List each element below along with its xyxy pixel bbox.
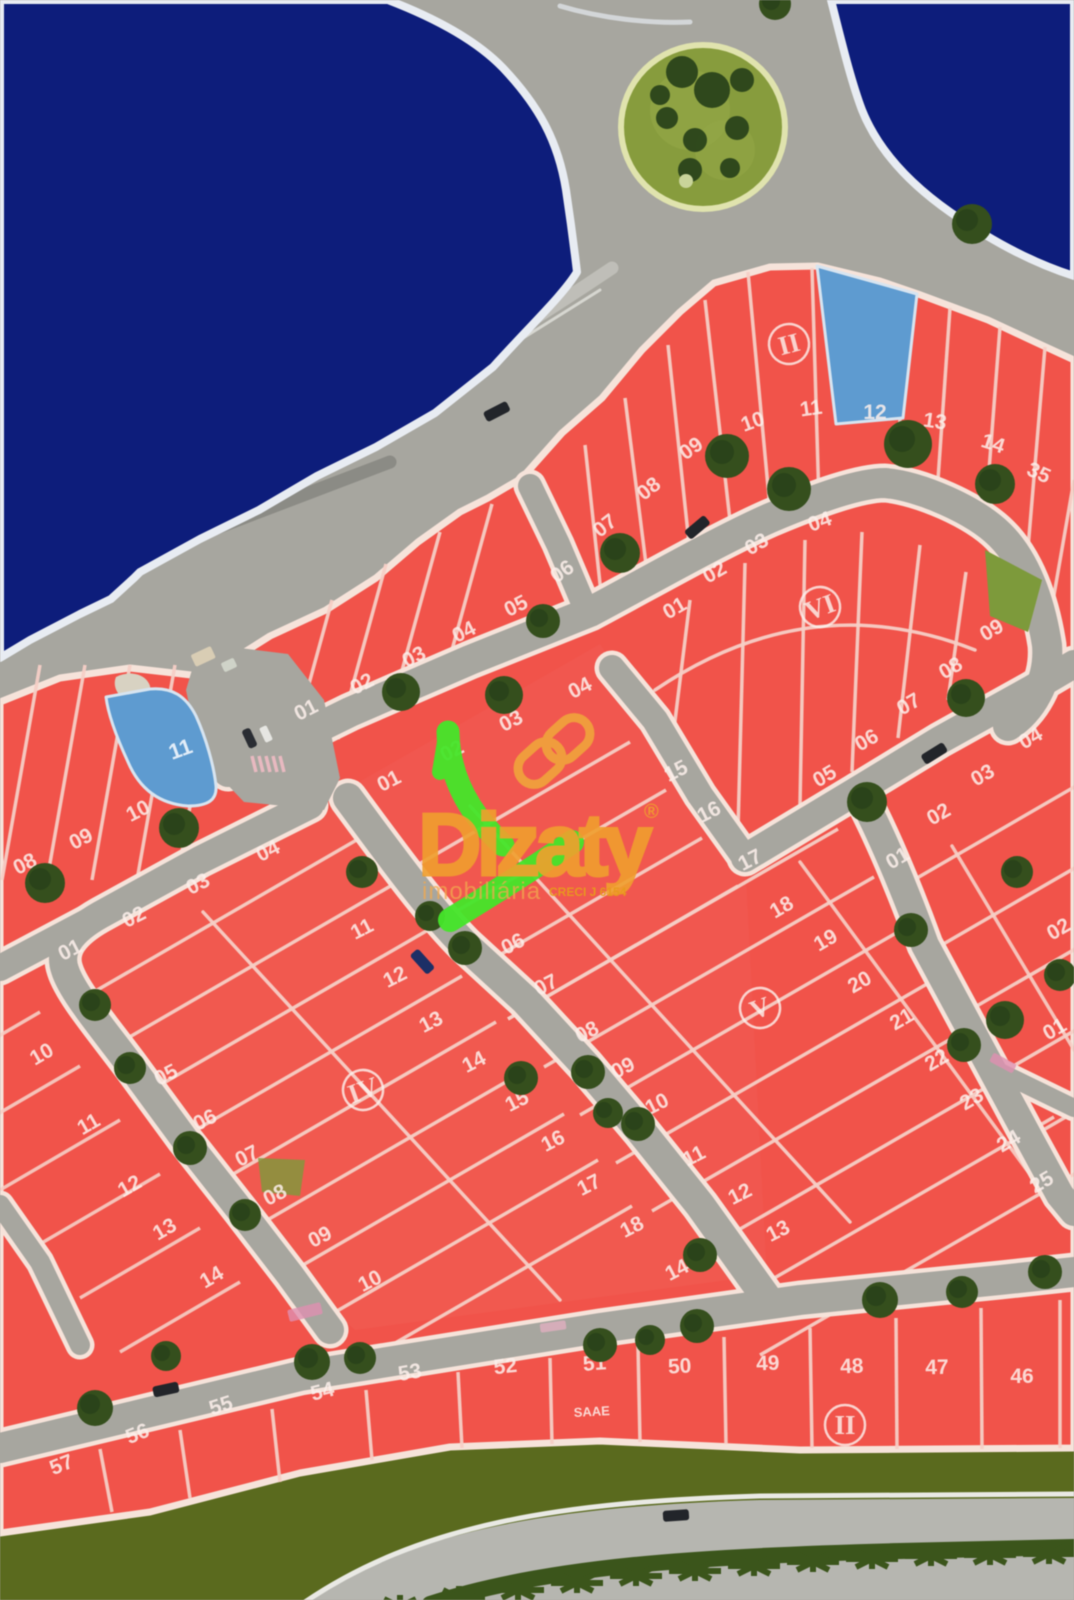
- svg-text:II: II: [834, 1410, 855, 1440]
- svg-text:CRECI J 6154: CRECI J 6154: [549, 885, 627, 899]
- svg-text:46: 46: [1010, 1365, 1033, 1388]
- svg-text:48: 48: [840, 1355, 864, 1379]
- svg-text:imobiliária: imobiliária: [422, 878, 541, 905]
- svg-text:53: 53: [396, 1359, 423, 1386]
- svg-text:47: 47: [925, 1356, 949, 1379]
- svg-text:®: ®: [644, 801, 659, 823]
- svg-text:52: 52: [493, 1354, 519, 1379]
- svg-text:SAAE: SAAE: [573, 1403, 610, 1420]
- svg-text:50: 50: [667, 1354, 692, 1378]
- svg-text:49: 49: [756, 1352, 780, 1376]
- svg-text:12: 12: [863, 401, 886, 424]
- svg-text:11: 11: [799, 396, 825, 422]
